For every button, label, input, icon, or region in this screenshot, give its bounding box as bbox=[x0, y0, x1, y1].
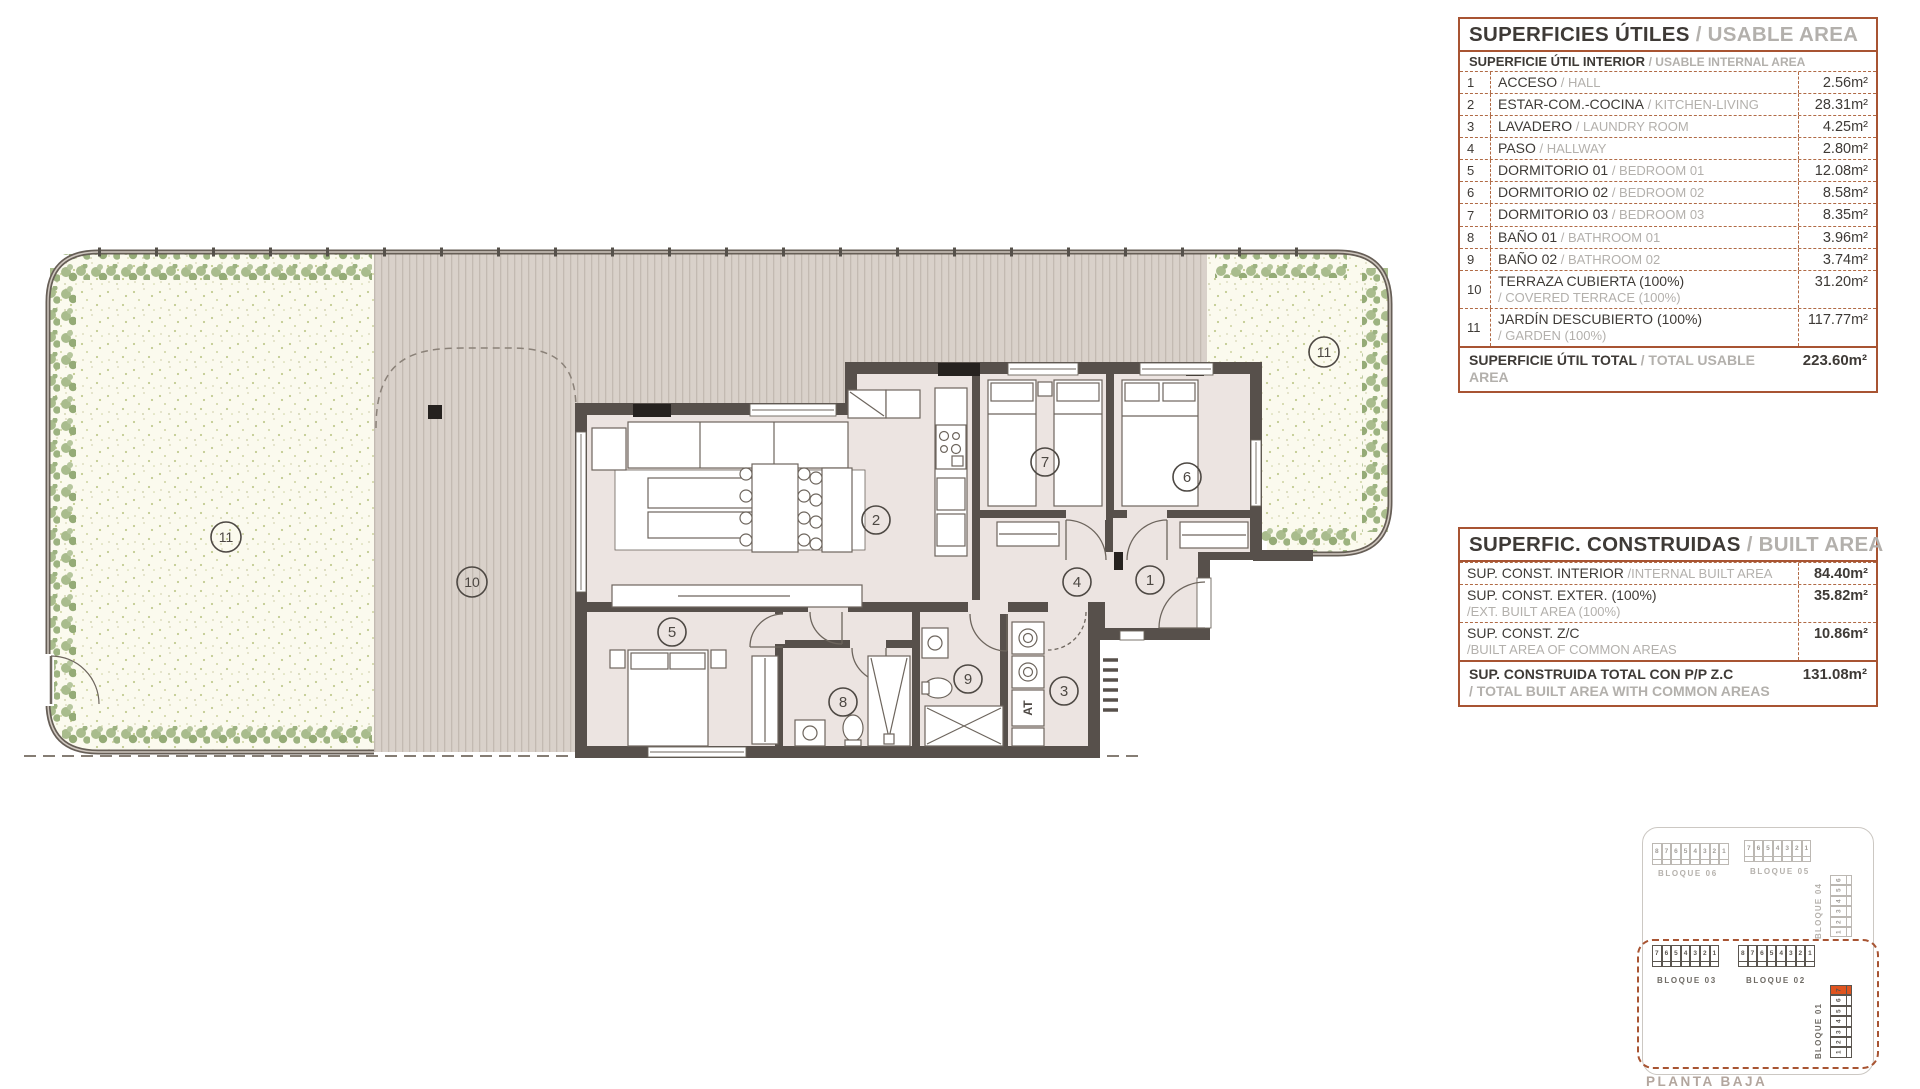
built-area-row: SUP. CONST. EXTER. (100%) /EXT. BUILT AR… bbox=[1460, 584, 1876, 622]
unit-cell: 6 bbox=[1671, 843, 1681, 865]
dining-table bbox=[752, 464, 798, 552]
usable-area-row: 1ACCESO / HALL2.56m² bbox=[1460, 71, 1876, 93]
row-value: 8.58m² bbox=[1798, 182, 1876, 203]
usable-area-subtitle: SUPERFICIE ÚTIL INTERIOR / USABLE INTERN… bbox=[1460, 52, 1876, 71]
row-value: 2.80m² bbox=[1798, 138, 1876, 159]
unit-cell: 1 bbox=[1805, 945, 1815, 967]
plant-border bbox=[62, 254, 372, 280]
built-area-table: SUPERFIC. CONSTRUIDAS / BUILT AREA SUP. … bbox=[1458, 527, 1878, 707]
unit-cell: 4 bbox=[1690, 843, 1700, 865]
garden-left bbox=[48, 252, 374, 752]
row-number: 1 bbox=[1460, 72, 1491, 93]
svg-text:7: 7 bbox=[1041, 454, 1049, 471]
block-01-label: BLOQUE 01 bbox=[1814, 985, 1823, 1059]
row-name: TERRAZA CUBIERTA (100%) / COVERED TERRAC… bbox=[1491, 271, 1798, 308]
usable-area-table: SUPERFICIES ÚTILES / USABLE AREA SUPERFI… bbox=[1458, 17, 1878, 393]
unit-cell: 2 bbox=[1792, 840, 1802, 862]
row-value: 3.74m² bbox=[1798, 249, 1876, 270]
row-number: 8 bbox=[1460, 227, 1491, 248]
usable-area-rows: 1ACCESO / HALL2.56m²2ESTAR-COM.-COCINA /… bbox=[1460, 71, 1876, 346]
row-name: DORMITORIO 01 / BEDROOM 01 bbox=[1491, 160, 1798, 181]
row-value: 117.77m² bbox=[1798, 309, 1876, 346]
row-value: 12.08m² bbox=[1798, 160, 1876, 181]
built-area-total: SUP. CONSTRUIDA TOTAL CON P/P Z.C / TOTA… bbox=[1460, 660, 1876, 705]
svg-text:1: 1 bbox=[1146, 572, 1154, 589]
unit-cell: 5 bbox=[1681, 843, 1691, 865]
unit-cell: 1 bbox=[1719, 843, 1729, 865]
unit-cell: 2 bbox=[1710, 843, 1720, 865]
row-number: 3 bbox=[1460, 116, 1491, 137]
plant-border bbox=[1262, 528, 1356, 552]
block-02: 87654321 bbox=[1738, 945, 1815, 967]
row-value: 3.96m² bbox=[1798, 227, 1876, 248]
row-value: 8.35m² bbox=[1798, 204, 1876, 225]
row-name: DORMITORIO 03 / BEDROOM 03 bbox=[1491, 204, 1798, 225]
row-value: 10.86m² bbox=[1798, 623, 1876, 660]
row-name: ESTAR-COM.-COCINA / KITCHEN-LIVING bbox=[1491, 94, 1798, 115]
unit-cell: 7 bbox=[1652, 945, 1662, 967]
unit-cell: 3 bbox=[1700, 843, 1710, 865]
block-01: 7654321 bbox=[1830, 985, 1852, 1058]
plant-border bbox=[62, 722, 372, 748]
row-name: PASO / HALLWAY bbox=[1491, 138, 1798, 159]
plant-border bbox=[1362, 268, 1388, 532]
svg-text:5: 5 bbox=[668, 624, 676, 641]
entrance-steps bbox=[1103, 660, 1118, 710]
unit-cell: 7 bbox=[1748, 945, 1758, 967]
row-number: 6 bbox=[1460, 182, 1491, 203]
building: AT bbox=[575, 362, 1262, 758]
usable-area-total: SUPERFICIE ÚTIL TOTAL / TOTAL USABLE ARE… bbox=[1460, 346, 1876, 391]
block-03: 7654321 bbox=[1652, 945, 1719, 967]
row-number: 7 bbox=[1460, 204, 1491, 225]
total-usable-value: 223.60m² bbox=[1803, 352, 1867, 371]
svg-text:11: 11 bbox=[219, 529, 234, 545]
shower bbox=[868, 656, 910, 746]
block-06-label: BLOQUE 06 bbox=[1658, 869, 1718, 878]
row-value: 84.40m² bbox=[1798, 563, 1876, 584]
unit-cell: 5 bbox=[1763, 840, 1773, 862]
sofa bbox=[628, 422, 848, 468]
svg-text:11: 11 bbox=[1317, 344, 1332, 360]
block-05-label: BLOQUE 05 bbox=[1750, 867, 1810, 876]
row-value: 31.20m² bbox=[1798, 271, 1876, 308]
built-area-row: SUP. CONST. Z/C /BUILT AREA OF COMMON AR… bbox=[1460, 622, 1876, 660]
row-number: 10 bbox=[1460, 271, 1491, 308]
plant-border bbox=[1215, 254, 1347, 278]
built-area-title: SUPERFIC. CONSTRUIDAS / BUILT AREA bbox=[1460, 529, 1876, 562]
unit-cell: 7 bbox=[1662, 843, 1672, 865]
row-name: BAÑO 02 / BATHROOM 02 bbox=[1491, 249, 1798, 270]
row-name: SUP. CONST. INTERIOR /INTERNAL BUILT ARE… bbox=[1460, 563, 1798, 584]
unit-cell: 4 bbox=[1776, 945, 1786, 967]
block-03-label: BLOQUE 03 bbox=[1657, 976, 1717, 985]
unit-cell: 4 bbox=[1681, 945, 1691, 967]
usable-area-row: 4PASO / HALLWAY2.80m² bbox=[1460, 137, 1876, 159]
floor-plan-drawing: AT 1 2 3 4 5 6 7 8 9 10 11 11 bbox=[0, 195, 1440, 795]
unit-cell: 5 bbox=[1767, 945, 1777, 967]
row-value: 28.31m² bbox=[1798, 94, 1876, 115]
unit-cell: 3 bbox=[1782, 840, 1792, 862]
unit-cell: 1 bbox=[1830, 927, 1852, 937]
usable-area-row: 9BAÑO 02 / BATHROOM 023.74m² bbox=[1460, 248, 1876, 270]
unit-cell: 1 bbox=[1802, 840, 1812, 862]
usable-area-row: 11JARDÍN DESCUBIERTO (100%) / GARDEN (10… bbox=[1460, 308, 1876, 346]
usable-area-row: 6DORMITORIO 02 / BEDROOM 028.58m² bbox=[1460, 181, 1876, 203]
row-name: SUP. CONST. EXTER. (100%) /EXT. BUILT AR… bbox=[1460, 585, 1798, 622]
row-number: 11 bbox=[1460, 309, 1491, 346]
svg-text:4: 4 bbox=[1073, 574, 1081, 591]
dining-table bbox=[822, 468, 852, 552]
unit-cell: 3 bbox=[1690, 945, 1700, 967]
floor-plan-page: { "colors":{"accent":"#a85432","dash":"#… bbox=[0, 0, 1920, 1080]
unit-cell: 6 bbox=[1662, 945, 1672, 967]
block-04-label: BLOQUE 04 bbox=[1814, 875, 1823, 939]
usable-area-row: 2ESTAR-COM.-COCINA / KITCHEN-LIVING28.31… bbox=[1460, 93, 1876, 115]
built-area-row: SUP. CONST. INTERIOR /INTERNAL BUILT ARE… bbox=[1460, 562, 1876, 584]
svg-text:8: 8 bbox=[839, 694, 847, 711]
row-number: 5 bbox=[1460, 160, 1491, 181]
total-built-value: 131.08m² bbox=[1803, 666, 1867, 685]
svg-text:3: 3 bbox=[1060, 683, 1068, 700]
usable-area-row: 7DORMITORIO 03 / BEDROOM 038.35m² bbox=[1460, 203, 1876, 225]
svg-text:2: 2 bbox=[872, 512, 880, 529]
row-number: 2 bbox=[1460, 94, 1491, 115]
structural-column bbox=[428, 405, 442, 419]
block-04: 654321 bbox=[1830, 875, 1852, 937]
block-06: 87654321 bbox=[1652, 843, 1729, 865]
row-number: 9 bbox=[1460, 249, 1491, 270]
usable-area-row: 8BAÑO 01 / BATHROOM 013.96m² bbox=[1460, 226, 1876, 248]
row-number: 4 bbox=[1460, 138, 1491, 159]
unit-cell: 1 bbox=[1710, 945, 1720, 967]
usable-area-title: SUPERFICIES ÚTILES / USABLE AREA bbox=[1460, 19, 1876, 52]
row-value: 2.56m² bbox=[1798, 72, 1876, 93]
unit-cell: 7 bbox=[1744, 840, 1754, 862]
usable-area-row: 5DORMITORIO 01 / BEDROOM 0112.08m² bbox=[1460, 159, 1876, 181]
site-plan: 87654321 BLOQUE 06 7654321 BLOQUE 05 654… bbox=[1642, 827, 1874, 1080]
unit-cell: 6 bbox=[1754, 840, 1764, 862]
water-heater-label: AT bbox=[1021, 700, 1035, 716]
unit-cell: 2 bbox=[1796, 945, 1806, 967]
row-name: BAÑO 01 / BATHROOM 01 bbox=[1491, 227, 1798, 248]
unit-cell: 5 bbox=[1671, 945, 1681, 967]
row-value: 35.82m² bbox=[1798, 585, 1876, 622]
row-name: SUP. CONST. Z/C /BUILT AREA OF COMMON AR… bbox=[1460, 623, 1798, 660]
unit-cell: 2 bbox=[1700, 945, 1710, 967]
usable-area-row: 10TERRAZA CUBIERTA (100%) / COVERED TERR… bbox=[1460, 270, 1876, 308]
unit-cell: 8 bbox=[1738, 945, 1748, 967]
built-area-rows: SUP. CONST. INTERIOR /INTERNAL BUILT ARE… bbox=[1460, 562, 1876, 660]
row-name: DORMITORIO 02 / BEDROOM 02 bbox=[1491, 182, 1798, 203]
unit-cell: 4 bbox=[1773, 840, 1783, 862]
svg-text:9: 9 bbox=[964, 671, 972, 688]
row-value: 4.25m² bbox=[1798, 116, 1876, 137]
row-name: JARDÍN DESCUBIERTO (100%) / GARDEN (100%… bbox=[1491, 309, 1798, 346]
unit-cell: 6 bbox=[1757, 945, 1767, 967]
toilet bbox=[843, 715, 863, 741]
svg-text:6: 6 bbox=[1183, 469, 1191, 486]
unit-cell: 8 bbox=[1652, 843, 1662, 865]
block-05: 7654321 bbox=[1744, 840, 1811, 862]
floor-level-label: PLANTA BAJA bbox=[1646, 1074, 1767, 1089]
svg-text:10: 10 bbox=[464, 574, 480, 590]
block-02-label: BLOQUE 02 bbox=[1746, 976, 1806, 985]
row-name: ACCESO / HALL bbox=[1491, 72, 1798, 93]
unit-cell: 3 bbox=[1786, 945, 1796, 967]
row-name: LAVADERO / LAUNDRY ROOM bbox=[1491, 116, 1798, 137]
usable-area-row: 3LAVADERO / LAUNDRY ROOM4.25m² bbox=[1460, 115, 1876, 137]
unit-cell: 1 bbox=[1830, 1047, 1852, 1057]
